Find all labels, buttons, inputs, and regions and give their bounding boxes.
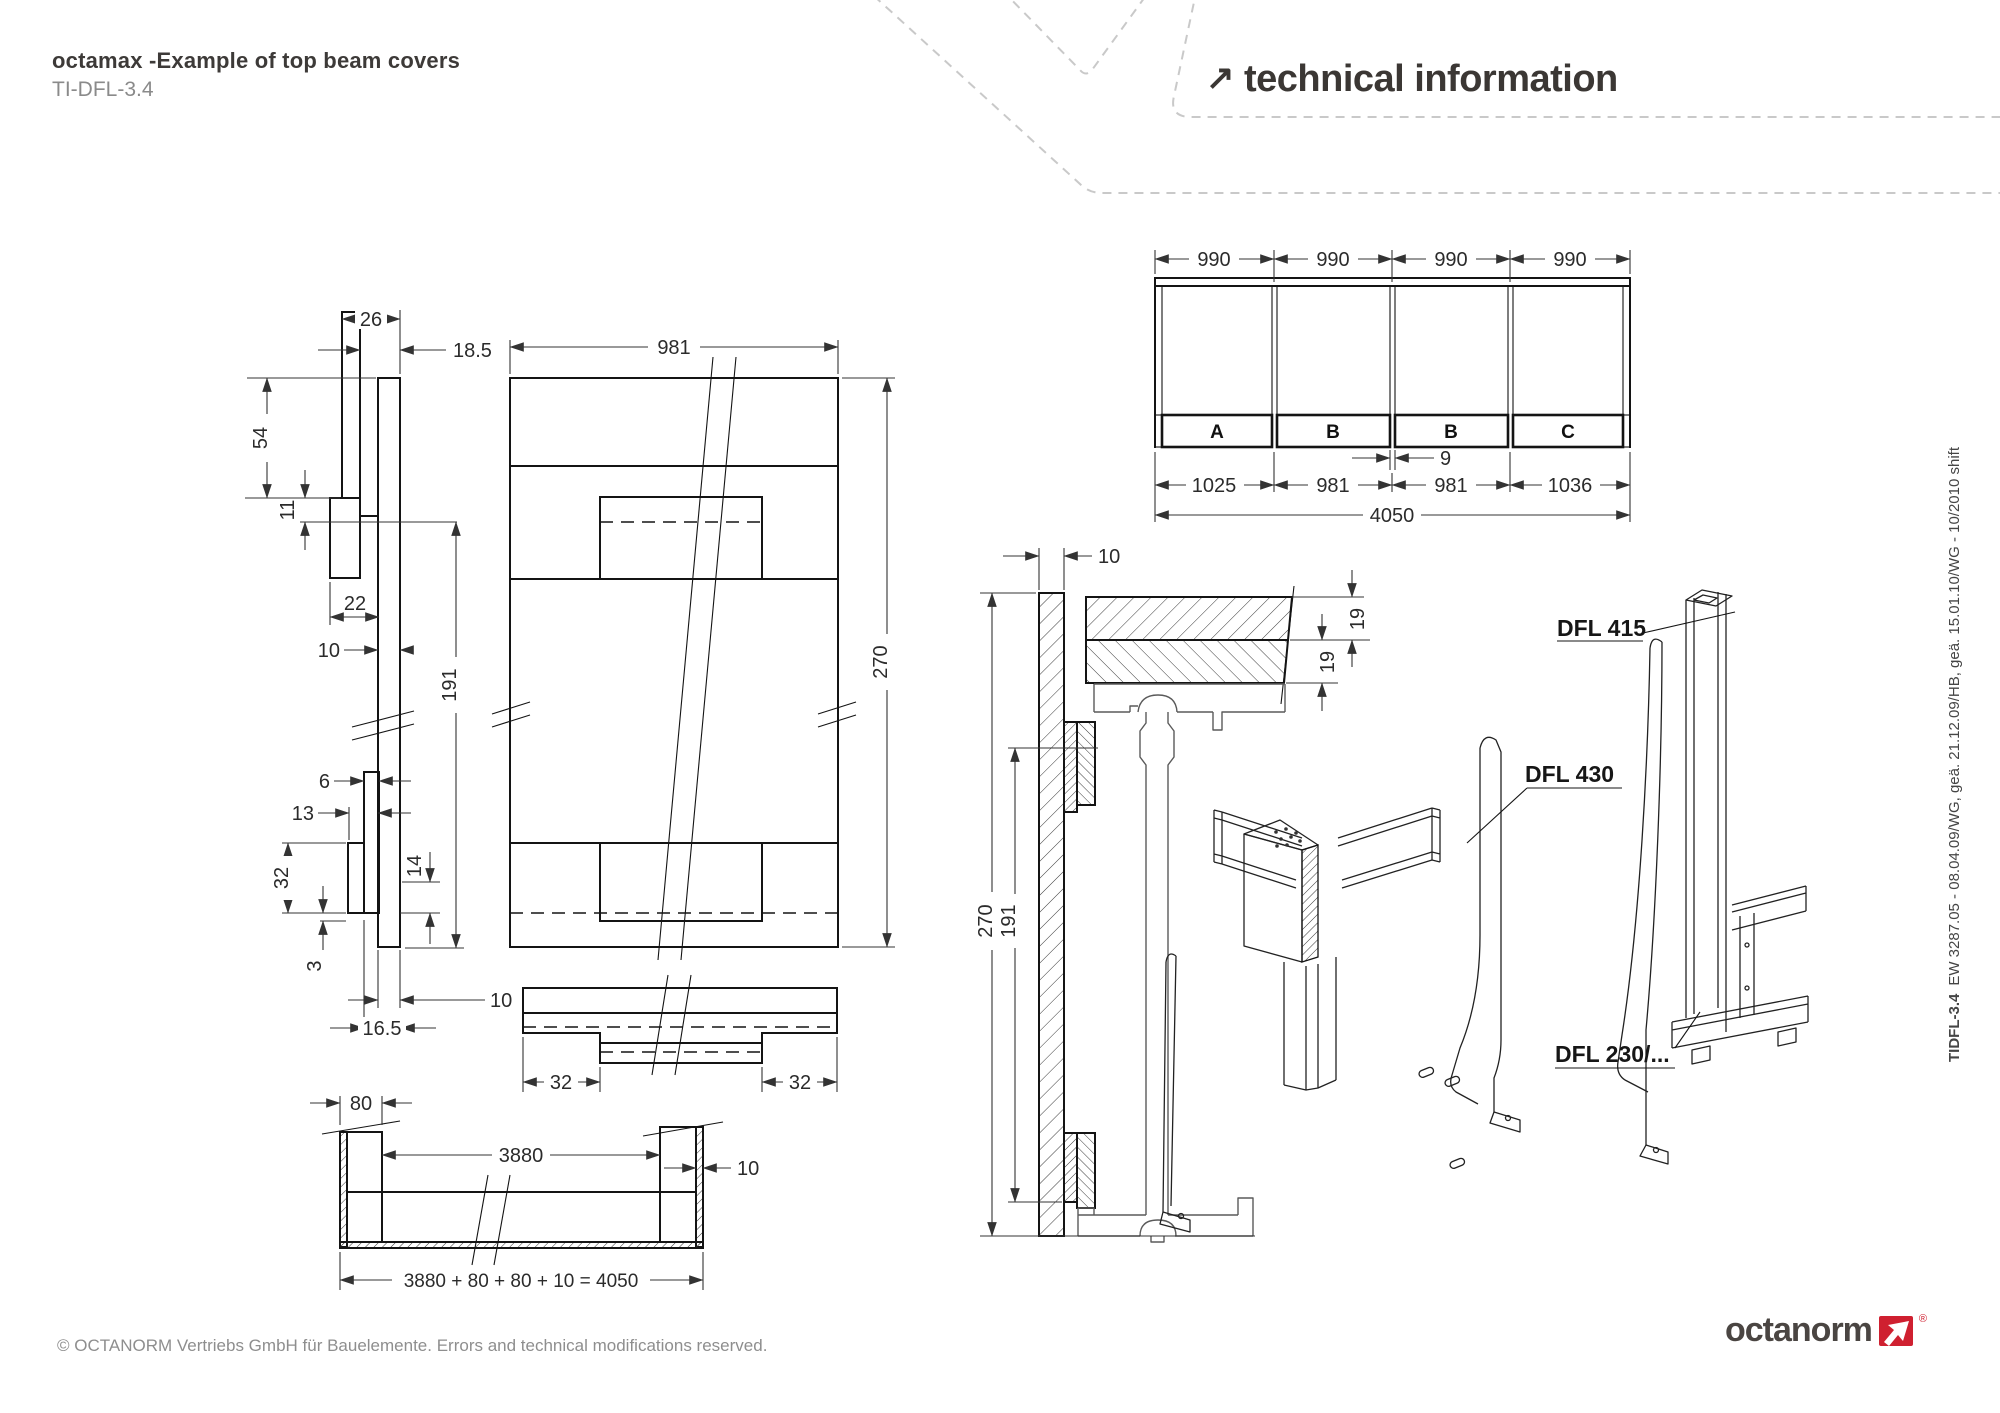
break-marks-strip: [652, 975, 691, 1075]
isometric-corner-assembly: [1160, 808, 1440, 1232]
strip-label-b2: B: [1444, 422, 1458, 443]
elevation-view: A B B C 990 990 990 990: [1155, 248, 1630, 527]
dim-990-4: 990: [1553, 249, 1586, 271]
label-dfl230: DFL 230/...: [1555, 1041, 1670, 1067]
part-labels: DFL 415 DFL 430 DFL 230/...: [1467, 612, 1735, 1068]
isometric-pins: [1418, 1066, 1466, 1169]
dim-191-section: 191: [998, 904, 1020, 937]
isometric-dfl430-sheet: [1451, 737, 1520, 1132]
plan-view-channel: 80 3880 10 3880 + 80 + 80 + 10 = 4050: [310, 1093, 759, 1292]
revision-doc-code: TIDFL-3.4: [1946, 994, 1963, 1062]
dim-9: 9: [1440, 448, 1451, 470]
revision-history: EW 3287.05 - 08.04.09/WG, geä. 21.12.09/…: [1946, 447, 1963, 986]
dim-19-bottom: 19: [1317, 651, 1339, 673]
label-dfl415: DFL 415: [1557, 615, 1646, 641]
dim-270-section: 270: [975, 904, 997, 937]
revision-note: TIDFL-3.4EW 3287.05 - 08.04.09/WG, geä. …: [1946, 437, 1963, 1062]
dim-14: 14: [404, 855, 426, 877]
dim-10-mid: 10: [318, 640, 340, 662]
octanorm-logo-text: octanorm: [1725, 1313, 1872, 1347]
doc-id: TI-DFL-3.4: [52, 78, 154, 102]
dim-981-b: 981: [1434, 475, 1467, 497]
dim-18-5: 18.5: [453, 340, 492, 362]
front-view-dimensions: 981 270: [510, 336, 898, 947]
dim-1025: 1025: [1192, 475, 1237, 497]
octanorm-logo: octanorm ®: [1725, 1313, 1927, 1347]
isometric-dfl415-post: [1618, 590, 1808, 1164]
dim-3: 3: [304, 960, 326, 971]
strip-label-a: A: [1210, 422, 1224, 443]
extrusion-profile: [1078, 684, 1285, 1242]
dim-981-a: 981: [1316, 475, 1349, 497]
page-title: octamax -Example of top beam covers: [52, 48, 460, 74]
dim-19-top: 19: [1347, 608, 1369, 630]
dim-10-bot: 10: [490, 990, 512, 1012]
dim-6: 6: [319, 771, 330, 793]
dim-32-left: 32: [550, 1072, 572, 1094]
dim-10-plan: 10: [737, 1158, 759, 1180]
technical-information-label: technical information: [1244, 58, 1618, 101]
break-marks-profile: [352, 711, 414, 740]
drawing-canvas: 26 18.5 54 11 22 10: [0, 0, 2000, 1413]
label-dfl430: DFL 430: [1525, 761, 1614, 787]
dim-990-3: 990: [1434, 249, 1467, 271]
dim-32-right: 32: [789, 1072, 811, 1094]
dim-1036: 1036: [1548, 475, 1593, 497]
dim-11: 11: [277, 500, 299, 521]
dim-10-section: 10: [1098, 546, 1120, 568]
elevation-posts: [1272, 286, 1513, 415]
dim-16-5: 16.5: [363, 1018, 402, 1040]
registered-trademark: ®: [1919, 1313, 1927, 1325]
dim-990-1: 990: [1197, 249, 1230, 271]
dim-22: 22: [344, 593, 366, 615]
front-view: 981 270: [492, 336, 898, 960]
octanorm-arrow-mark-icon: [1879, 1313, 1917, 1347]
dim-270-front: 270: [870, 645, 892, 678]
dim-26: 26: [360, 309, 382, 331]
strip-label-b1: B: [1326, 422, 1340, 443]
strip-label-c: C: [1561, 422, 1575, 443]
dim-13: 13: [292, 803, 314, 825]
dim-191: 191: [439, 668, 461, 701]
technical-information-header: ↗ technical information: [1206, 58, 1618, 101]
break-marks-plan: [472, 1175, 510, 1265]
up-right-arrow-icon: ↗: [1206, 58, 1234, 98]
dim-981: 981: [657, 337, 690, 359]
dim-32: 32: [271, 867, 293, 889]
copyright-line: © OCTANORM Vertriebs GmbH für Bauelement…: [57, 1336, 767, 1356]
dim-formula: 3880 + 80 + 80 + 10 = 4050: [404, 1271, 639, 1292]
cover-strip-band: A B B C: [1155, 415, 1630, 447]
dim-80: 80: [350, 1093, 372, 1115]
dim-990-2: 990: [1316, 249, 1349, 271]
dim-54: 54: [250, 427, 272, 449]
break-marks-front: [492, 357, 856, 960]
dim-4050: 4050: [1370, 505, 1415, 527]
technical-sheet-page: 26 18.5 54 11 22 10: [0, 0, 2000, 1413]
profile-side-view: 26 18.5 54 11 22 10: [245, 308, 512, 1040]
cover-strip-bottom-view: 32 32: [523, 975, 837, 1094]
elevation-dimensions: 990 990 990 990 9 1025 981: [1155, 248, 1630, 527]
dim-3880: 3880: [499, 1145, 544, 1167]
